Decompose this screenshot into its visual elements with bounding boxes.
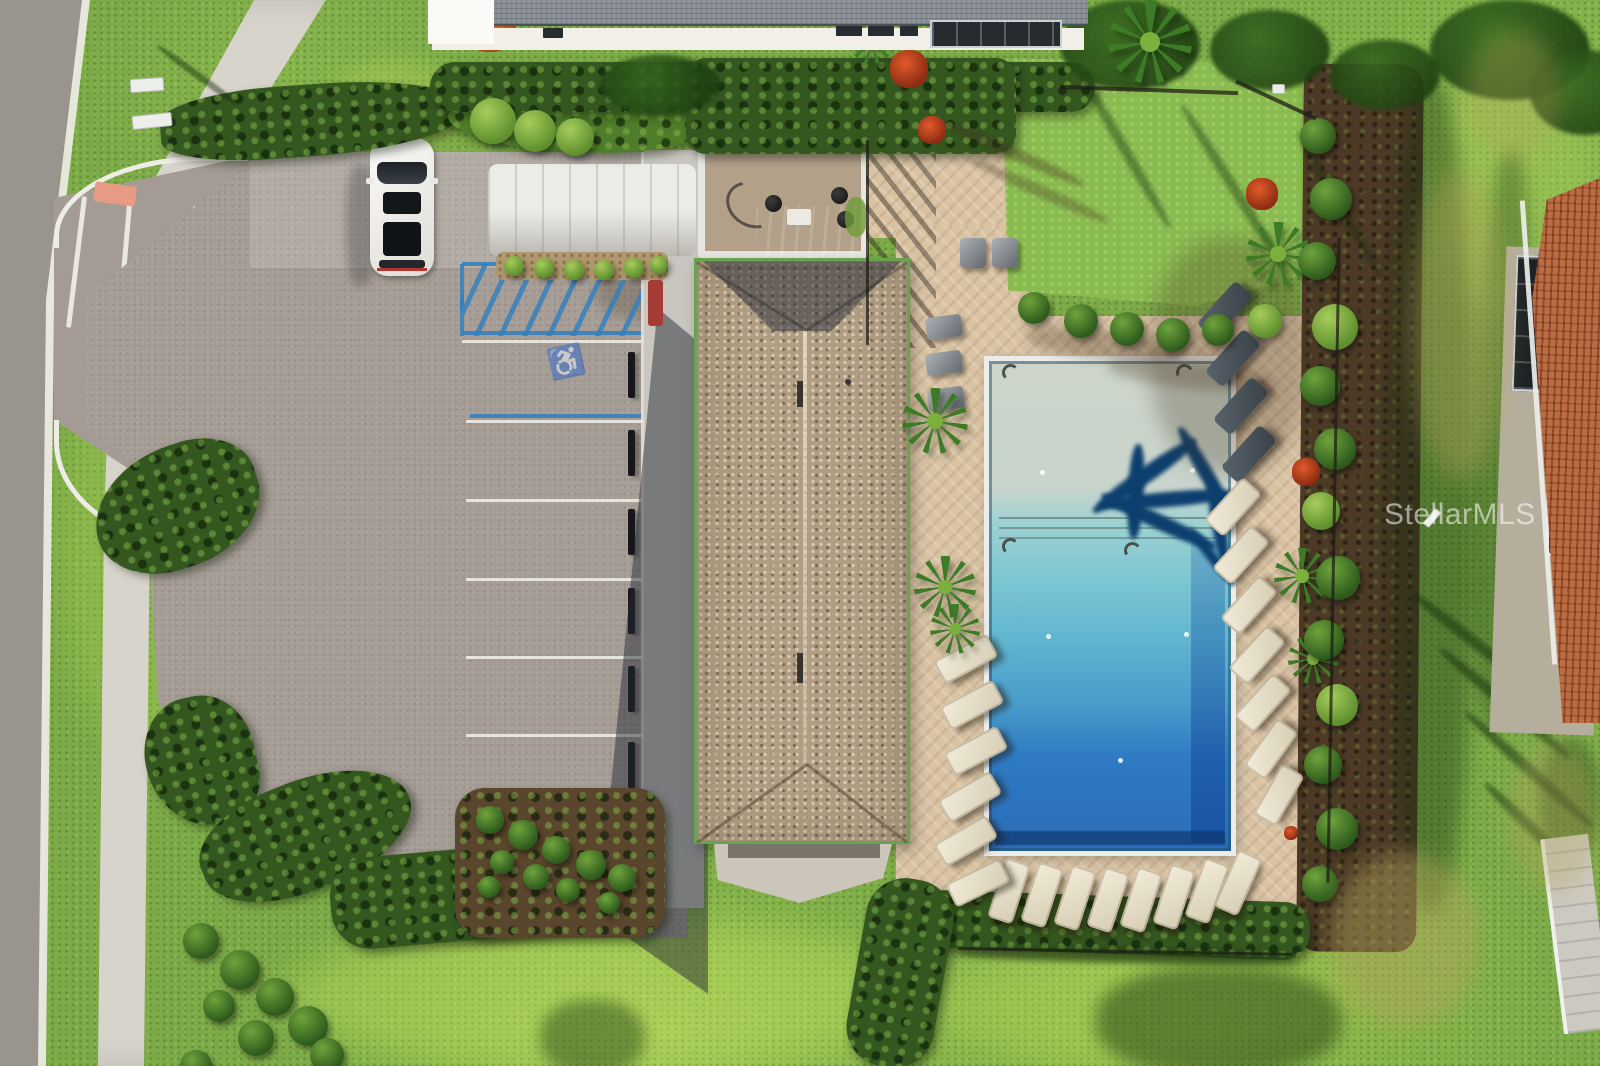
bushes-item <box>534 258 554 278</box>
canopies-item <box>1210 10 1330 90</box>
bushes-item <box>1248 304 1282 338</box>
palms-item <box>902 388 968 454</box>
bushes-item <box>1064 304 1098 338</box>
wheel-stops-item <box>628 509 635 555</box>
bushes-item <box>1018 292 1050 324</box>
bushes-item <box>1110 312 1144 346</box>
bushes-item <box>514 110 556 152</box>
canopies-item <box>1330 40 1440 110</box>
roof-hip-line <box>806 763 908 844</box>
red-accents-item <box>918 116 946 144</box>
mats-item <box>648 280 663 326</box>
porch-roof-shadow <box>728 844 880 858</box>
neighboring-house-top <box>428 0 1088 54</box>
pool-dots-item <box>1184 632 1189 637</box>
car-rear-window <box>379 260 425 268</box>
red-accents-item <box>1246 178 1278 210</box>
pool-dots-item <box>1190 468 1195 473</box>
dry-patches-item <box>1412 170 1507 480</box>
bushes-item <box>504 256 524 276</box>
bushes-item <box>1304 620 1344 660</box>
bushes-item <box>564 260 584 280</box>
bushes-item <box>238 1020 274 1056</box>
pool-pump <box>831 187 848 204</box>
bushes-item <box>576 850 606 880</box>
clubhouse-roof <box>694 258 910 844</box>
roof-hip-line <box>696 763 808 843</box>
bushes-item <box>1316 808 1358 850</box>
bushes-item <box>1316 684 1358 726</box>
windows-top-item <box>836 26 862 36</box>
enclosure-grass <box>845 197 867 237</box>
wheel-stops-item <box>628 430 635 476</box>
bushes-item <box>478 876 500 898</box>
palms-item <box>930 604 980 654</box>
red-accents-item <box>890 50 928 88</box>
pool-equipment-enclosure <box>698 146 868 258</box>
car-mirror-right <box>430 178 438 184</box>
palms-item <box>1108 0 1192 84</box>
roof-ridge <box>803 327 807 771</box>
dry-patches-item <box>1508 742 1598 892</box>
red-accents-item <box>1292 458 1320 486</box>
handicap-symbol: ♿ <box>545 344 588 381</box>
pool-deep-end <box>995 831 1225 845</box>
bushes-item <box>594 260 614 280</box>
shadows-item <box>540 1000 645 1066</box>
car-sunroof-front <box>383 192 421 214</box>
bushes-item <box>470 98 516 144</box>
canopies-item <box>600 55 720 115</box>
bushes-item <box>1304 746 1342 784</box>
bushes-item <box>256 978 294 1016</box>
hedges-item <box>686 58 1016 154</box>
bushes-item <box>1302 866 1338 902</box>
car-windshield <box>377 162 427 184</box>
pool-step-line <box>999 517 1223 519</box>
bushes-item <box>220 950 260 990</box>
windows-top-item <box>900 26 918 36</box>
handrails-item <box>1002 538 1019 555</box>
equipment-box <box>787 209 811 225</box>
bushes-item <box>476 806 504 834</box>
bushes-item <box>203 990 235 1022</box>
bushes-item <box>1316 556 1360 600</box>
bushes-item <box>650 256 668 274</box>
bushes-item <box>608 864 636 892</box>
watermark: StellarMLS <box>1384 498 1536 532</box>
white-boxes-item <box>130 77 165 93</box>
red-accents-item <box>1284 826 1298 840</box>
pool-dots-item <box>1040 470 1045 475</box>
bushes-item <box>523 864 549 890</box>
car-sunroof-rear <box>383 222 421 256</box>
bushes-item <box>556 118 594 156</box>
pool-dots-item <box>1118 758 1123 763</box>
neighbor-screened-lanai <box>930 20 1062 48</box>
loungers-item <box>960 238 986 268</box>
handrails-item <box>1002 364 1019 381</box>
pool-deep-stripe <box>1191 541 1225 843</box>
fences-item <box>866 140 869 345</box>
covered-walkway-pergola <box>488 164 696 256</box>
white-boxes-item <box>1272 84 1285 94</box>
bushes-item <box>1156 318 1190 352</box>
shadows-item <box>1096 966 1341 1066</box>
neighbor-gable <box>428 0 494 44</box>
bushes-item <box>310 1038 344 1066</box>
bushes-item <box>556 878 580 902</box>
aerial-photo: ♿ <box>0 0 1600 1066</box>
bushes-item <box>490 850 514 874</box>
loungers-item <box>992 238 1018 268</box>
roof-vent <box>797 381 803 407</box>
car-mirror-left <box>366 178 374 184</box>
bushes-item <box>1300 118 1336 154</box>
bushes-item <box>1310 178 1352 220</box>
wheel-stops-item <box>628 352 635 398</box>
dry-patches-item <box>1330 852 1480 1027</box>
bushes-item <box>183 923 219 959</box>
windows-top-item <box>868 26 894 36</box>
roof-vent <box>797 653 803 683</box>
dry-patches-item <box>1466 30 1561 160</box>
parked-white-car <box>370 138 434 276</box>
pool-dots-item <box>1046 634 1051 639</box>
bushes-item <box>542 836 570 864</box>
roof-shade <box>697 261 907 341</box>
bushes-item <box>508 820 538 850</box>
windows-top-item <box>543 28 563 38</box>
roof-vent <box>845 379 851 385</box>
bushes-item <box>624 258 644 278</box>
bushes-item <box>1298 242 1336 280</box>
car-taillights <box>377 268 427 271</box>
bushes-item <box>598 892 620 914</box>
bushes-item <box>1202 314 1234 346</box>
